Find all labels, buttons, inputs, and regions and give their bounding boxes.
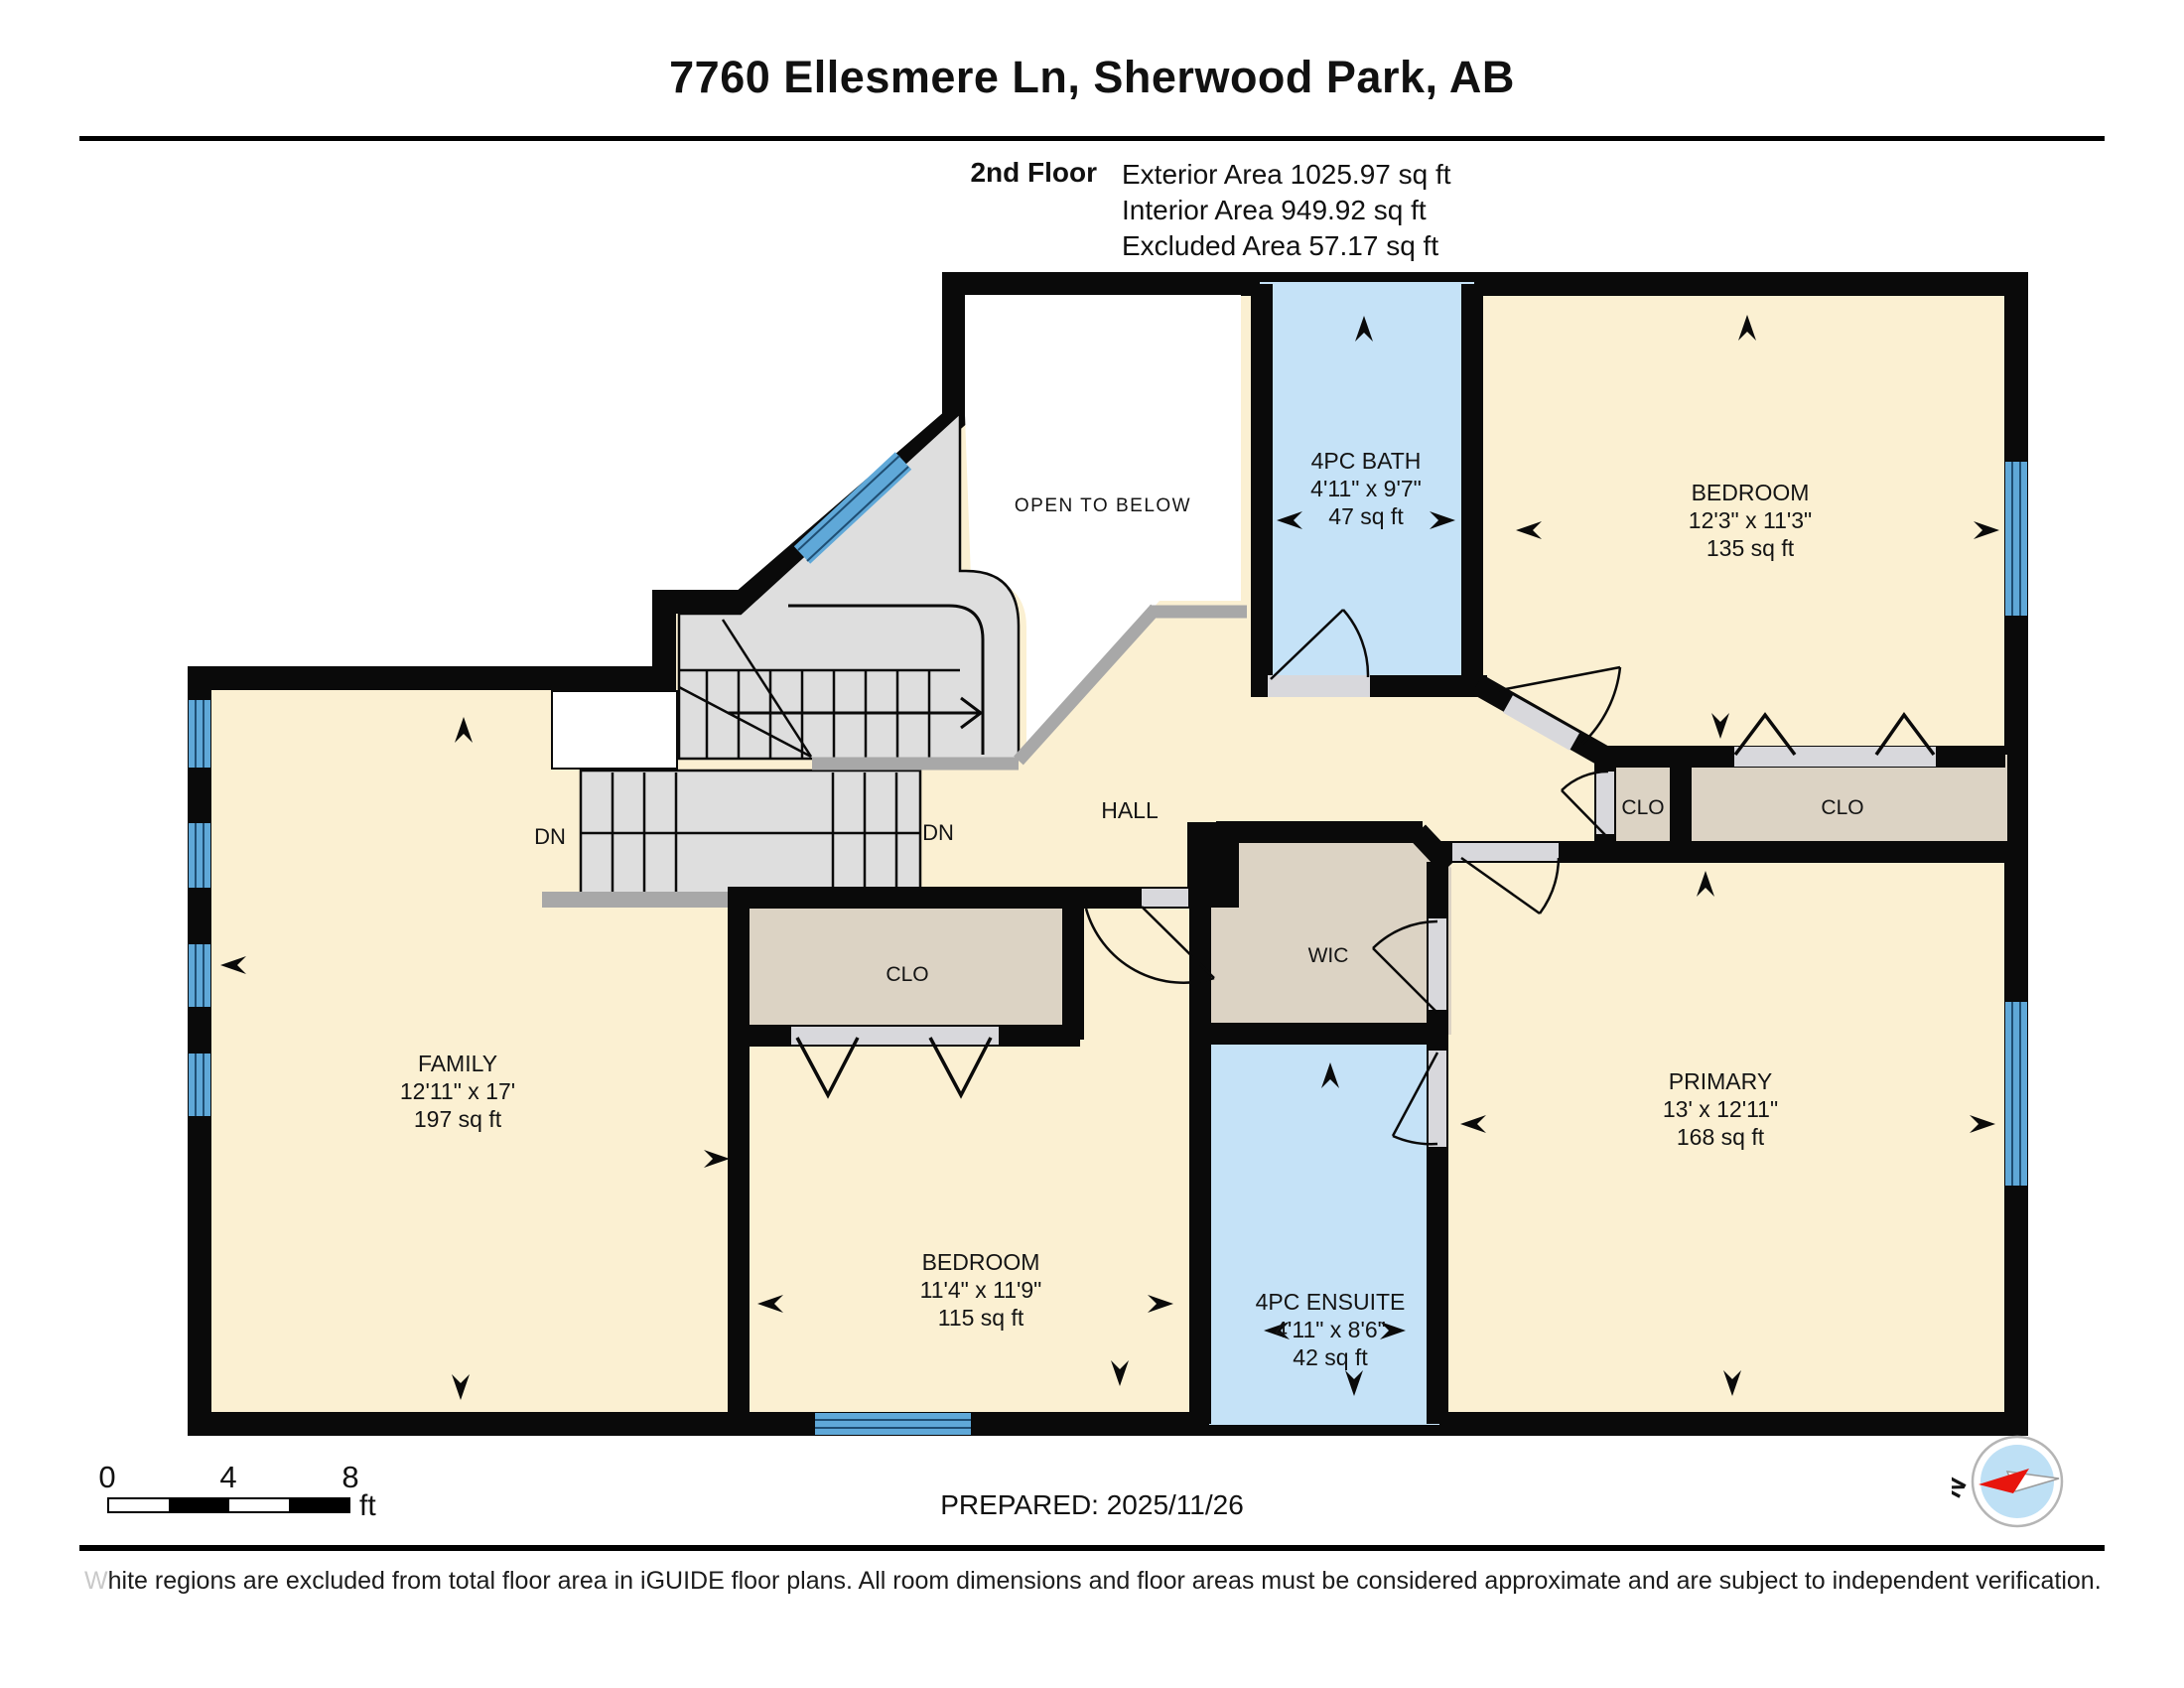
family-area: 197 sq ft bbox=[414, 1106, 502, 1132]
stairs-dn-left-label: DN bbox=[534, 824, 566, 849]
excluded-notch bbox=[552, 691, 677, 769]
closet-hall-label: CLO bbox=[1621, 796, 1664, 819]
stair-bottom-railing bbox=[542, 892, 733, 908]
compass-north-label: N bbox=[1952, 1472, 1973, 1502]
ensuite-area: 42 sq ft bbox=[1293, 1344, 1368, 1370]
interior-area: Interior Area 949.92 sq ft bbox=[1122, 193, 1451, 228]
primary-dims: 13' x 12'11" bbox=[1663, 1096, 1778, 1122]
bedroom-right-dims: 12'3" x 11'3" bbox=[1689, 507, 1812, 533]
primary-window bbox=[2005, 1002, 2027, 1186]
bath-dims: 4'11" x 9'7" bbox=[1310, 476, 1422, 501]
wall-junction bbox=[1187, 822, 1239, 908]
wic-room bbox=[1209, 832, 1451, 1035]
area-summary: Exterior Area 1025.97 sq ft Interior Are… bbox=[1122, 157, 1451, 264]
bedroom-right-area: 135 sq ft bbox=[1706, 535, 1795, 561]
bath-area: 47 sq ft bbox=[1328, 503, 1404, 529]
closet-primary-label: CLO bbox=[1821, 796, 1863, 819]
bedroom-right-name: BEDROOM bbox=[1692, 480, 1810, 505]
floor-label: 2nd Floor bbox=[854, 157, 1097, 189]
disclaimer-lead: W bbox=[84, 1567, 108, 1595]
disclaimer-rest: hite regions are excluded from total flo… bbox=[108, 1567, 2102, 1595]
family-dims: 12'11" x 17' bbox=[400, 1078, 515, 1104]
bath-name: 4PC BATH bbox=[1311, 448, 1422, 474]
page-title: 7760 Ellesmere Ln, Sherwood Park, AB bbox=[0, 52, 2184, 103]
family-name: FAMILY bbox=[418, 1051, 497, 1076]
bedroom-bottom-dims: 11'4" x 11'9" bbox=[920, 1277, 1042, 1303]
ensuite-dims: 4'11" x 8'6" bbox=[1275, 1317, 1386, 1342]
bedroom-bottom-window bbox=[815, 1413, 971, 1435]
primary-area: 168 sq ft bbox=[1677, 1124, 1765, 1150]
compass-icon: N bbox=[1952, 1422, 2083, 1541]
wic-label: WIC bbox=[1308, 944, 1349, 967]
open-to-below-label: OPEN TO BELOW bbox=[1015, 495, 1191, 516]
exterior-area: Exterior Area 1025.97 sq ft bbox=[1122, 157, 1451, 193]
floor-plan-page: 7760 Ellesmere Ln, Sherwood Park, AB 2nd… bbox=[0, 0, 2184, 1688]
excluded-area: Excluded Area 57.17 sq ft bbox=[1122, 228, 1451, 264]
ensuite-name: 4PC ENSUITE bbox=[1256, 1289, 1406, 1315]
closet-bedroom-label: CLO bbox=[886, 963, 928, 986]
disclaimer-text: White regions are excluded from total fl… bbox=[84, 1567, 2119, 1596]
footer-divider bbox=[79, 1545, 2105, 1551]
stairs-dn-right-label: DN bbox=[922, 820, 954, 845]
bedroom-bottom-area: 115 sq ft bbox=[938, 1305, 1024, 1331]
bedroom-right-window bbox=[2005, 462, 2027, 616]
bedroom-bottom-name: BEDROOM bbox=[922, 1249, 1040, 1275]
prepared-date: PREPARED: 2025/11/26 bbox=[0, 1489, 2184, 1521]
hall-label: HALL bbox=[1101, 797, 1159, 823]
floor-plan-drawing: OPEN TO BELOW 4PC BATH 4'11" x 9'7" 47 s… bbox=[187, 270, 2033, 1437]
primary-name: PRIMARY bbox=[1669, 1068, 1772, 1094]
header-divider bbox=[79, 136, 2105, 141]
